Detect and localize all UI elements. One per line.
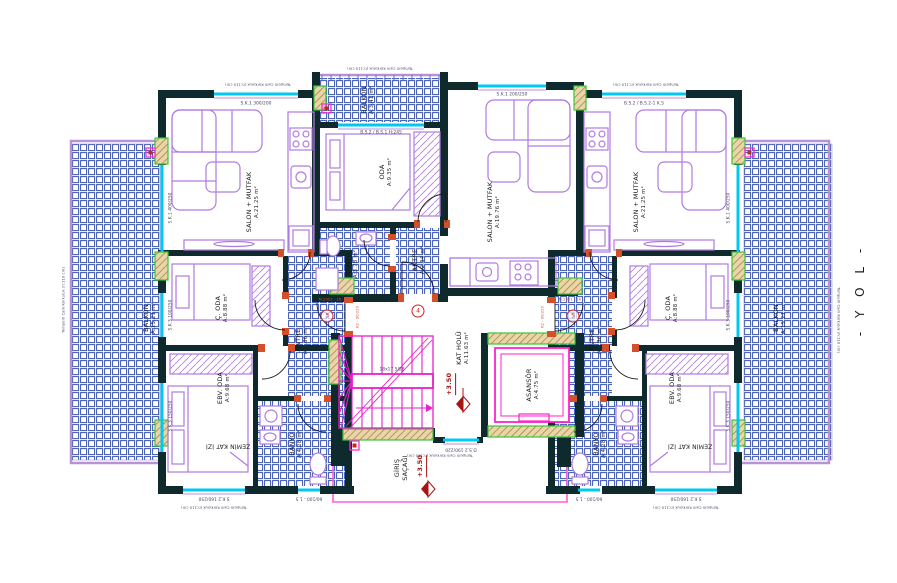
room-name: SALON + MUTFAK bbox=[246, 172, 254, 233]
room-label-salon-right: SALON + MUTFAKA:21.25 m² bbox=[633, 172, 647, 233]
room-label-antre-left: ANTREA:4.86 m² bbox=[295, 326, 309, 354]
room-label-antre-right: ANTREA:4.86 m² bbox=[589, 326, 603, 354]
room-name: ODA bbox=[379, 164, 387, 179]
room-area: A:9.35 m² bbox=[387, 158, 393, 186]
room-area: A:4.28 m² bbox=[601, 430, 607, 458]
room-name: SALON + MUTFAK bbox=[487, 182, 495, 243]
railing-note-right: Temperli Cam Korkuluk (h:110 cm) bbox=[836, 287, 841, 353]
room-area: A:19.76 m² bbox=[495, 196, 501, 228]
room-label-ebv-oda-right: EBV. ODAA:9.68 m² bbox=[669, 372, 683, 404]
staircase bbox=[339, 336, 433, 428]
room-area: A:4.86 m² bbox=[303, 326, 309, 354]
door-type-label-right: K2 - 90/220 bbox=[541, 306, 546, 328]
room-name: BALKON bbox=[143, 304, 151, 332]
door-code-label-left: M.2001 - 1K bbox=[319, 298, 342, 303]
room-label-salon-left: SALON + MUTFAKA:21.25 m² bbox=[246, 172, 260, 233]
room-label-salon-mid: SALON + MUTFAKA:19.76 m² bbox=[487, 182, 501, 243]
room-area: A:4.86 m² bbox=[597, 326, 603, 354]
door-type-label-left: K2 - 90/220 bbox=[356, 306, 361, 328]
room-area: A:8.88 m² bbox=[223, 294, 229, 322]
window-label-balcony-door-left: S.K.1 400/250 bbox=[168, 193, 173, 224]
room-area: A:3.41 m² bbox=[369, 86, 375, 114]
room-name: EBV. ODA bbox=[669, 372, 677, 404]
window-label-top-mid: S.K.1 200/250 bbox=[497, 92, 528, 97]
railing-note-top-left: Temperli Cam Korkuluk (h:110 cm) bbox=[225, 82, 291, 87]
railing-note-left: Temperli Cam Korkuluk (h:110 cm) bbox=[62, 267, 67, 333]
room-label-balkon-mid: BALKONA:3.41 m² bbox=[361, 86, 375, 114]
room-area: A:9.68 m² bbox=[225, 374, 231, 402]
room-label-oda-mid: ODAA:9.35 m² bbox=[379, 158, 393, 186]
tiled-floors bbox=[72, 78, 832, 486]
room-name: ANTRE bbox=[589, 329, 597, 352]
stair-note: 18x17.5/28 bbox=[379, 367, 404, 372]
window-label-top-right: B.S.2 / B.S.2-1 K.5 bbox=[624, 101, 664, 106]
door-number-right: 5 bbox=[567, 310, 580, 323]
room-label-coda-right: Ç. ODAA:8.88 m² bbox=[665, 294, 679, 322]
room-name: BANYO bbox=[289, 432, 297, 456]
room-area: A:21.25 m² bbox=[254, 186, 260, 218]
room-name: BALKON bbox=[773, 304, 781, 332]
room-label-banyo-mid: BANYOA:3.78 m² bbox=[345, 250, 359, 278]
window-label-balcony-door-right: S.K.1 400/250 bbox=[726, 193, 731, 224]
room-area: A:4.28 m² bbox=[297, 430, 303, 458]
room-area: A:4.75 m² bbox=[534, 371, 540, 399]
room-label-ebv-oda-left: EBV. ODAA:9.68 m² bbox=[217, 372, 231, 404]
window-label-side-right: S.K.3 100/250 bbox=[726, 300, 731, 331]
level-text-hall: +3.50 bbox=[446, 373, 456, 395]
room-label-coda-left: Ç. ODAA:8.88 m² bbox=[215, 294, 229, 322]
window-label-side-low-left: S.K.3 150/250 bbox=[168, 401, 173, 432]
room-name: BANYO bbox=[345, 252, 353, 276]
room-area: A:3.78 m² bbox=[353, 250, 359, 278]
railing-note-bottom-right: Temperli Cam Korkuluk (h:110 cm) bbox=[653, 505, 719, 510]
railing-note-bottom-left: Temperli Cam Korkuluk (h:110 cm) bbox=[181, 505, 247, 510]
room-label-balkon-right: BALKONA:15.21 m² bbox=[773, 302, 787, 334]
room-name: ASANSÖR bbox=[526, 368, 534, 401]
room-label-banyo-right: BANYOA:4.28 m² bbox=[593, 430, 607, 458]
room-name: ANTRE bbox=[412, 249, 420, 272]
room-area: A:8.88 m² bbox=[673, 294, 679, 322]
room-name: KAT HOLÜ bbox=[456, 331, 464, 365]
room-area: A:21.25 m² bbox=[641, 186, 647, 218]
room-label-banyo-left: BANYOA:4.28 m² bbox=[289, 430, 303, 458]
room-label-asansor: ASANSÖRA:4.75 m² bbox=[526, 368, 540, 401]
room-area: A:2.34 m² bbox=[420, 246, 426, 274]
window-label-side-left: S.K.3 100/250 bbox=[168, 300, 173, 331]
window-label-bath-right: 60/100 - 1.5 bbox=[576, 495, 603, 500]
room-name: BANYO bbox=[593, 432, 601, 456]
window-label-bottom-right: S.K.2 160/250 bbox=[671, 495, 702, 500]
room-name: ANTRE bbox=[295, 329, 303, 352]
room-name: Ç. ODA bbox=[215, 296, 223, 320]
room-name: Ç. ODA bbox=[665, 296, 673, 320]
window-label-side-low-right: S.K.3 150/250 bbox=[726, 401, 731, 432]
room-area: A:15.21 m² bbox=[151, 302, 157, 334]
door-code-label-right: M.2001 - 1K bbox=[559, 298, 582, 303]
window-label-top-left: S.K.1 300/200 bbox=[241, 101, 272, 106]
window-label-balkon-mid: B.S.2 / B.S.1 H:245 bbox=[360, 130, 402, 135]
room-name: BALKON bbox=[361, 86, 369, 114]
floor-plan-drawing bbox=[0, 0, 897, 583]
door-number-left: 3 bbox=[321, 310, 334, 323]
floor-trace-right: ZEMİN KAT İZİ bbox=[668, 442, 713, 449]
door-number-middle: 4 bbox=[412, 305, 425, 318]
entrance-canopy-label: GİRİŞSAÇAĞI bbox=[394, 455, 410, 481]
room-area: A:15.21 m² bbox=[781, 302, 787, 334]
room-label-balkon-left: BALKONA:15.21 m² bbox=[143, 302, 157, 334]
room-name: SALON + MUTFAK bbox=[633, 172, 641, 233]
window-label-hall: D.S.2 190/220 bbox=[445, 446, 476, 451]
railing-note-top-right: Temperli Cam Korkuluk (h:110 cm) bbox=[613, 82, 679, 87]
floor-trace-left: ZEMİN KAT İZİ bbox=[206, 442, 251, 449]
room-label-kat-holu: KAT HOLÜA:11.63 m² bbox=[456, 331, 470, 365]
room-area: A:9.68 m² bbox=[677, 374, 683, 402]
street-label: - Y O L - bbox=[853, 244, 867, 336]
room-label-antre-mid: ANTREA:2.34 m² bbox=[412, 246, 426, 274]
railing-note-balkon-mid: Temperli Cam Korkuluk (h:110 cm) bbox=[347, 66, 413, 71]
room-area: A:11.63 m² bbox=[464, 332, 470, 364]
floor-plan-page: SALON + MUTFAKA:21.25 m² BALKONA:15.21 m… bbox=[0, 0, 897, 583]
window-label-bath-left: 60/100 - 1.5 bbox=[296, 495, 323, 500]
room-name: EBV. ODA bbox=[217, 372, 225, 404]
railing-note-entrance: Temperli Cam Korkuluk (h:110 cm) bbox=[407, 453, 473, 458]
window-label-bottom-left: S.K.2 160/250 bbox=[199, 495, 230, 500]
